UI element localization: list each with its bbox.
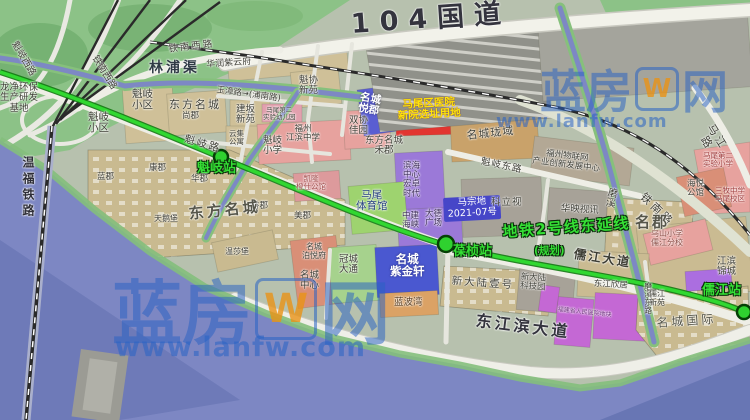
station-label-baozhen: 葆桢站 [453, 245, 492, 259]
watermark-url-bottom-left: www.lanfw.com [115, 332, 366, 363]
metro-planning-label: (规划) [534, 246, 565, 257]
place-longjing: 龙净环保 生产研发 基地 [0, 83, 38, 114]
place-kinder: 马尾第二 实验幼儿园 [263, 107, 296, 121]
place-haiyue: 海悦 公馆 [687, 180, 704, 198]
place-hospital-site: 马尾区医院 新院选址用地 [397, 97, 461, 123]
railway-label-wenfu: 温福铁路 [21, 156, 34, 220]
station-dot-baozhen [438, 236, 454, 252]
real-estate-map: 104国道 铁南西路 铁南西路 魁岐西路 魁岐路 玉漳路→(浦南路) 魁岐东路 … [0, 0, 750, 420]
lanfw-logo-icon: W [255, 278, 317, 340]
place-dfmc-he: 东方名城 禾郡 [365, 136, 403, 157]
canal-label-linpuqu: 林浦渠 [149, 61, 200, 76]
place-sanmu: 三牧中学 马尾校区 [715, 187, 745, 203]
place-kangjun: 康郡 [149, 164, 166, 173]
place-lanjun: 蓝郡 [97, 173, 114, 182]
place-jiangbinjincheng: 江滨 锦城 [717, 257, 736, 278]
place-huaying: 华映视讯 [560, 204, 598, 216]
lanfw-logo-icon: W [635, 67, 679, 111]
place-yuejun: 名城 悦郡 [357, 92, 382, 118]
place-zijinxuan: 名城 紫金轩 [390, 253, 425, 278]
place-jiangbin-school: 福州 江滨中学 [286, 125, 320, 143]
watermark-url-top-right: www.lanfw.com [496, 111, 668, 132]
place-shuangxie: 双协 佳园 [349, 116, 368, 137]
station-label-rujiang: 儒江站 [702, 284, 741, 298]
place-huajun: 华郡 [191, 175, 208, 184]
place-kelishi: 科立视 [491, 198, 523, 208]
place-kuiqi-school: 魁岐 小学 [263, 136, 282, 157]
place-wushan-school: 乌山小学 儒江分校 [651, 230, 683, 247]
place-kailong: 凯隆 橙仕公馆 [296, 175, 326, 191]
place-yunji: 云集 公寓 [229, 130, 244, 146]
place-rujiang-xinyuan: 儒江 新苑 [649, 290, 665, 307]
place-kuiqi-xiaoqu-a: 魁岐 小区 [132, 89, 153, 112]
place-tianebao: 天鹅堡 [154, 215, 178, 224]
place-dfmc-top: 东方名城 [169, 99, 221, 111]
place-dongjiang-xinju: 东江欣居 [594, 280, 628, 291]
place-mingjun: 名郡 [635, 214, 669, 230]
place-zhongjian: 中建 海峡 [402, 212, 419, 230]
place-binhai: 滨海 中心 宏卓 时代 [403, 162, 420, 199]
place-xindalu-tech: 新大陆 科技园 [520, 273, 547, 293]
place-exp-school: 马尾第二 实验小学 [703, 152, 733, 168]
place-jianban: 建坂 新苑 [236, 105, 255, 126]
place-lanbowan: 蓝波湾 [394, 298, 423, 308]
place-wenshabao: 温莎堡 [225, 248, 249, 257]
place-dade: 大德 广场 [425, 210, 442, 228]
watermark-brand-right: 网 [682, 56, 728, 122]
place-kuixie: 魁协 新苑 [299, 76, 318, 97]
place-kuiqi-xiaoqu-b: 魁岐 小区 [88, 112, 109, 135]
place-meijun: 美郡 [294, 212, 311, 221]
station-dot-rujiang [737, 305, 750, 319]
place-shangjun: 尚郡 [182, 112, 199, 121]
place-stadium: 马尾 体育馆 [356, 190, 388, 213]
